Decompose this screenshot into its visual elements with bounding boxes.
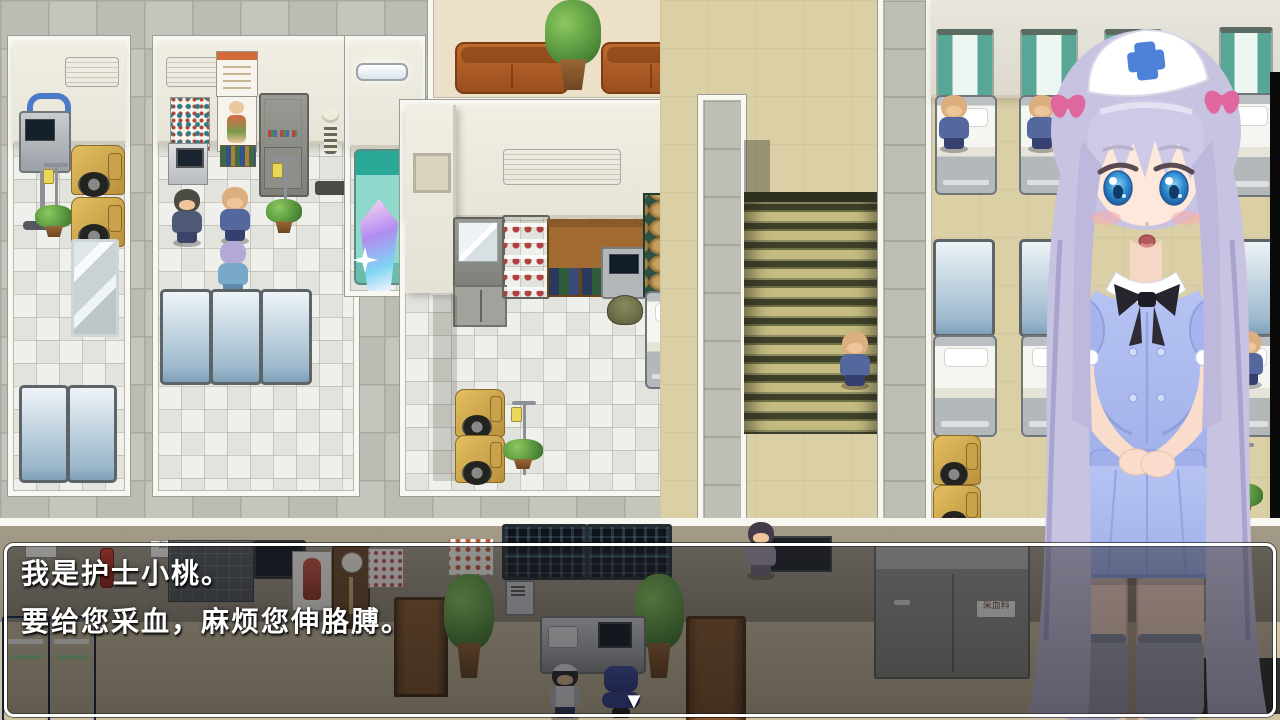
dialogue-line-2: 要给您采血，麻烦您伸胳膊。: [7, 600, 1273, 640]
npc-stair-patient[interactable]: [838, 332, 872, 388]
large-potted-plant: [545, 0, 601, 90]
staircase[interactable]: [744, 202, 880, 434]
cabinet-glass: [264, 99, 302, 145]
privacy-screen: [260, 289, 312, 385]
anatomy-organs-icon: [227, 115, 246, 143]
air-conditioner: [166, 57, 220, 87]
privacy-screen: [210, 289, 262, 385]
privacy-screen: [933, 239, 995, 337]
wheelchair: [933, 435, 981, 485]
book-row: [220, 145, 256, 167]
dish-cabinet: [502, 215, 550, 299]
hospital-bed: [933, 335, 997, 437]
privacy-screen: [160, 289, 212, 385]
anatomy-figure-icon: [229, 101, 244, 114]
exam-room-b: [153, 36, 359, 496]
stairs-top-edge: [744, 192, 880, 202]
potted-plant: [503, 439, 543, 469]
inner-wall: [405, 105, 456, 293]
anatomy-poster: [217, 96, 257, 152]
laptop-desk: [168, 143, 208, 185]
air-conditioner: [65, 57, 119, 87]
game-screen: 采血科 采血科: [0, 0, 1280, 720]
potted-plant: [266, 199, 302, 233]
pillar-shadow: [744, 140, 770, 196]
cabinet-glass: [458, 222, 498, 262]
glass-cabinet: [453, 217, 505, 289]
machine-screen-icon: [25, 119, 55, 141]
wheelchair: [455, 435, 505, 483]
sliding-cabinet: [453, 285, 507, 327]
npc-doctor[interactable]: [170, 189, 204, 245]
dialogue-window[interactable]: 我是护士小桃。 要给您采血，麻烦您伸胳膊。 ▼: [4, 543, 1276, 717]
privacy-screen: [67, 385, 117, 483]
wheelchair: [455, 389, 505, 437]
standing-mirror: [71, 239, 119, 337]
notice-frame: [413, 153, 451, 193]
continue-indicator-icon[interactable]: ▼: [623, 688, 645, 714]
npc-ward-patient[interactable]: [937, 95, 971, 151]
pillar-left: [698, 95, 746, 523]
laptop-icon: [176, 148, 204, 168]
stool: [607, 295, 643, 325]
curtained-window: [936, 29, 994, 97]
cart-screen-icon: [609, 254, 639, 274]
cabinet-divider: [480, 290, 482, 322]
pillar-right: [878, 0, 932, 518]
air-vent: [503, 149, 621, 185]
monitor-cart: [601, 247, 647, 299]
exam-room-a: [8, 36, 130, 496]
potted-plant: [35, 205, 73, 237]
fluorescent-light: [356, 63, 408, 81]
privacy-screen: [19, 385, 69, 483]
wall-calendar: [216, 51, 258, 97]
wall-shadow: [433, 295, 457, 481]
wheelchair: [71, 145, 125, 195]
dialogue-line-1: 我是护士小桃。: [7, 552, 1273, 592]
npc-bald-patient[interactable]: [218, 187, 252, 243]
